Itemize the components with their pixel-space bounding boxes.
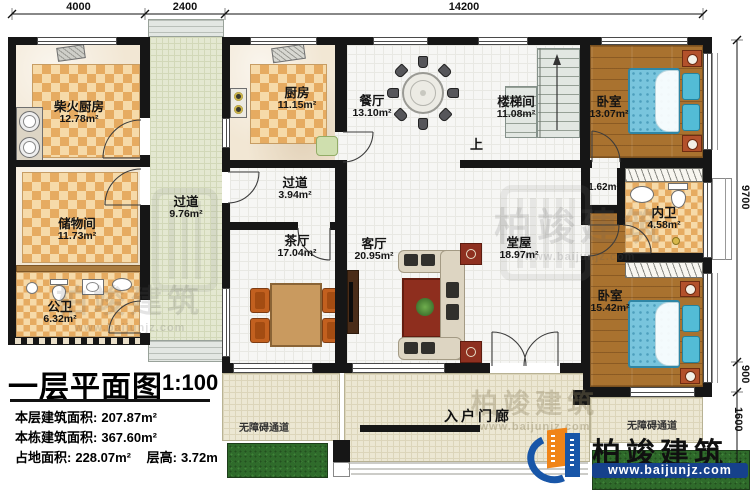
dining-chair <box>418 56 428 68</box>
dining-chair <box>418 118 428 130</box>
stat-floor-area: 本层建筑面积:207.87m² <box>15 407 161 426</box>
corridor-threshold <box>148 340 224 362</box>
window <box>222 118 230 148</box>
dining-chair <box>447 88 459 98</box>
bed-pillow <box>682 305 700 332</box>
dim-top-3: 14200 <box>225 1 703 13</box>
wall <box>617 253 703 262</box>
room-label-stairwell: 楼梯间11.08m² <box>466 95 566 121</box>
dim-right-2: 900 <box>739 365 750 383</box>
bed-pillow <box>682 73 700 100</box>
room-label-bedroom1: 卧室13.07m² <box>559 95 659 121</box>
window <box>373 37 428 45</box>
toilet-ensuite-tank <box>668 183 688 190</box>
room-label-storage: 储物间11.73m² <box>27 217 127 243</box>
logo-building-orange <box>547 428 567 469</box>
porch-pillar <box>333 440 350 462</box>
wall <box>222 160 347 168</box>
wall <box>8 160 150 167</box>
room-label-bedroom2: 卧室15.42m² <box>560 289 660 315</box>
brand-website: www.baijunjz.com <box>592 463 748 478</box>
window <box>703 273 712 383</box>
kitchen-mat <box>316 136 338 156</box>
dim-top-2: 2400 <box>145 1 225 13</box>
dim-top-1: 4000 <box>12 1 145 13</box>
room-label-dining: 餐厅13.10m² <box>322 94 422 120</box>
brand-logo-icon <box>527 427 591 487</box>
wall <box>620 158 712 168</box>
wood-stove-pot-2 <box>19 137 40 158</box>
wall <box>581 168 590 225</box>
wall <box>583 387 630 397</box>
pendant-lamp <box>26 282 38 294</box>
potted-plant <box>416 298 434 316</box>
wall <box>703 37 712 53</box>
room-label-ensuite-bath: 内卫4.58m² <box>614 206 714 232</box>
stairs-up-label: 上 <box>470 134 492 153</box>
sink-public <box>112 278 132 291</box>
wall-vent-strip <box>8 337 150 345</box>
closet-area-label: 1.62m² <box>554 182 654 193</box>
wall <box>460 160 592 168</box>
window <box>250 37 317 45</box>
tea-chair <box>250 288 270 313</box>
room-label-firewood-kitchen: 柴火厨房12.78m² <box>29 100 129 126</box>
floor-plan: 柏竣建筑 www.baijunjz.com 柏竣建筑 www.baijunjz.… <box>0 0 750 495</box>
accessible-path-left-label: 无障碍通道 <box>214 419 314 434</box>
stat-footprint-and-height: 占地面积:228.07m² 层高:3.72m <box>15 447 222 466</box>
closet-hatch-top <box>625 168 703 182</box>
room-label-main-hall: 堂屋18.97m² <box>469 236 569 262</box>
tv-screen <box>349 282 353 322</box>
porch-pillar-base <box>333 462 350 477</box>
sofa-cushion <box>421 342 435 354</box>
sofa-cushion <box>446 304 459 320</box>
wall <box>703 383 712 397</box>
window <box>233 363 313 373</box>
window-sill <box>712 53 718 150</box>
dim-tick <box>733 36 741 469</box>
dim-right-1: 9700 <box>739 185 750 209</box>
window <box>630 387 695 397</box>
nightstand <box>680 368 700 384</box>
logo-building-windows <box>551 435 555 463</box>
title-underline <box>10 399 210 402</box>
accent-chair <box>460 341 482 363</box>
wall <box>445 363 490 373</box>
wall <box>703 258 712 273</box>
window <box>703 53 712 150</box>
wall <box>428 37 478 45</box>
window <box>352 363 445 373</box>
bed-pillow <box>682 104 700 131</box>
wall <box>222 37 230 118</box>
logo-building-windows <box>570 439 574 469</box>
bay-window <box>712 178 732 260</box>
sofa-cushion <box>404 342 418 354</box>
kitchen-burner-1 <box>234 92 243 101</box>
stair-flight-right <box>537 48 580 138</box>
closet-hatch-bottom <box>625 262 703 278</box>
wall <box>140 37 150 118</box>
lawn-left <box>227 443 328 478</box>
window <box>37 37 117 45</box>
wall <box>140 333 150 345</box>
room-floor-corridor <box>150 37 222 340</box>
wall <box>330 222 347 230</box>
floor-drain <box>672 237 680 245</box>
bay-window-line <box>725 178 726 260</box>
wall <box>313 363 352 373</box>
sofa-cushion <box>446 282 459 298</box>
window <box>478 37 528 45</box>
nightstand <box>682 50 702 67</box>
window-sill <box>712 273 718 383</box>
partition-wood <box>16 265 142 272</box>
bed-pillow <box>682 336 700 363</box>
stat-building-area: 本栋建筑面积:367.60m² <box>15 427 161 446</box>
tea-chair <box>250 318 270 343</box>
dim-right-3: 1600 <box>732 407 744 431</box>
nightstand <box>680 281 700 297</box>
window <box>222 288 230 357</box>
corridor-canopy <box>148 19 224 37</box>
nightstand <box>682 135 702 152</box>
tea-table <box>270 283 322 347</box>
wall <box>8 37 16 345</box>
wall <box>230 222 298 230</box>
wall <box>222 363 233 373</box>
wall <box>140 155 150 167</box>
porch-edge-bar <box>360 425 480 432</box>
room-label-hallway: 过道3.94m² <box>245 176 345 202</box>
kitchen-burner-2 <box>234 105 243 114</box>
room-label-public-bath: 公卫6.32m² <box>10 300 110 326</box>
plan-scale: 1:100 <box>162 370 218 396</box>
room-label-corridor: 过道9.76m² <box>136 195 236 221</box>
entry-porch-label: 入户门廊 <box>408 406 548 426</box>
room-label-living-room: 客厅20.95m² <box>324 237 424 263</box>
window <box>601 37 688 45</box>
wall <box>528 37 601 45</box>
washstand-basin <box>86 282 99 292</box>
